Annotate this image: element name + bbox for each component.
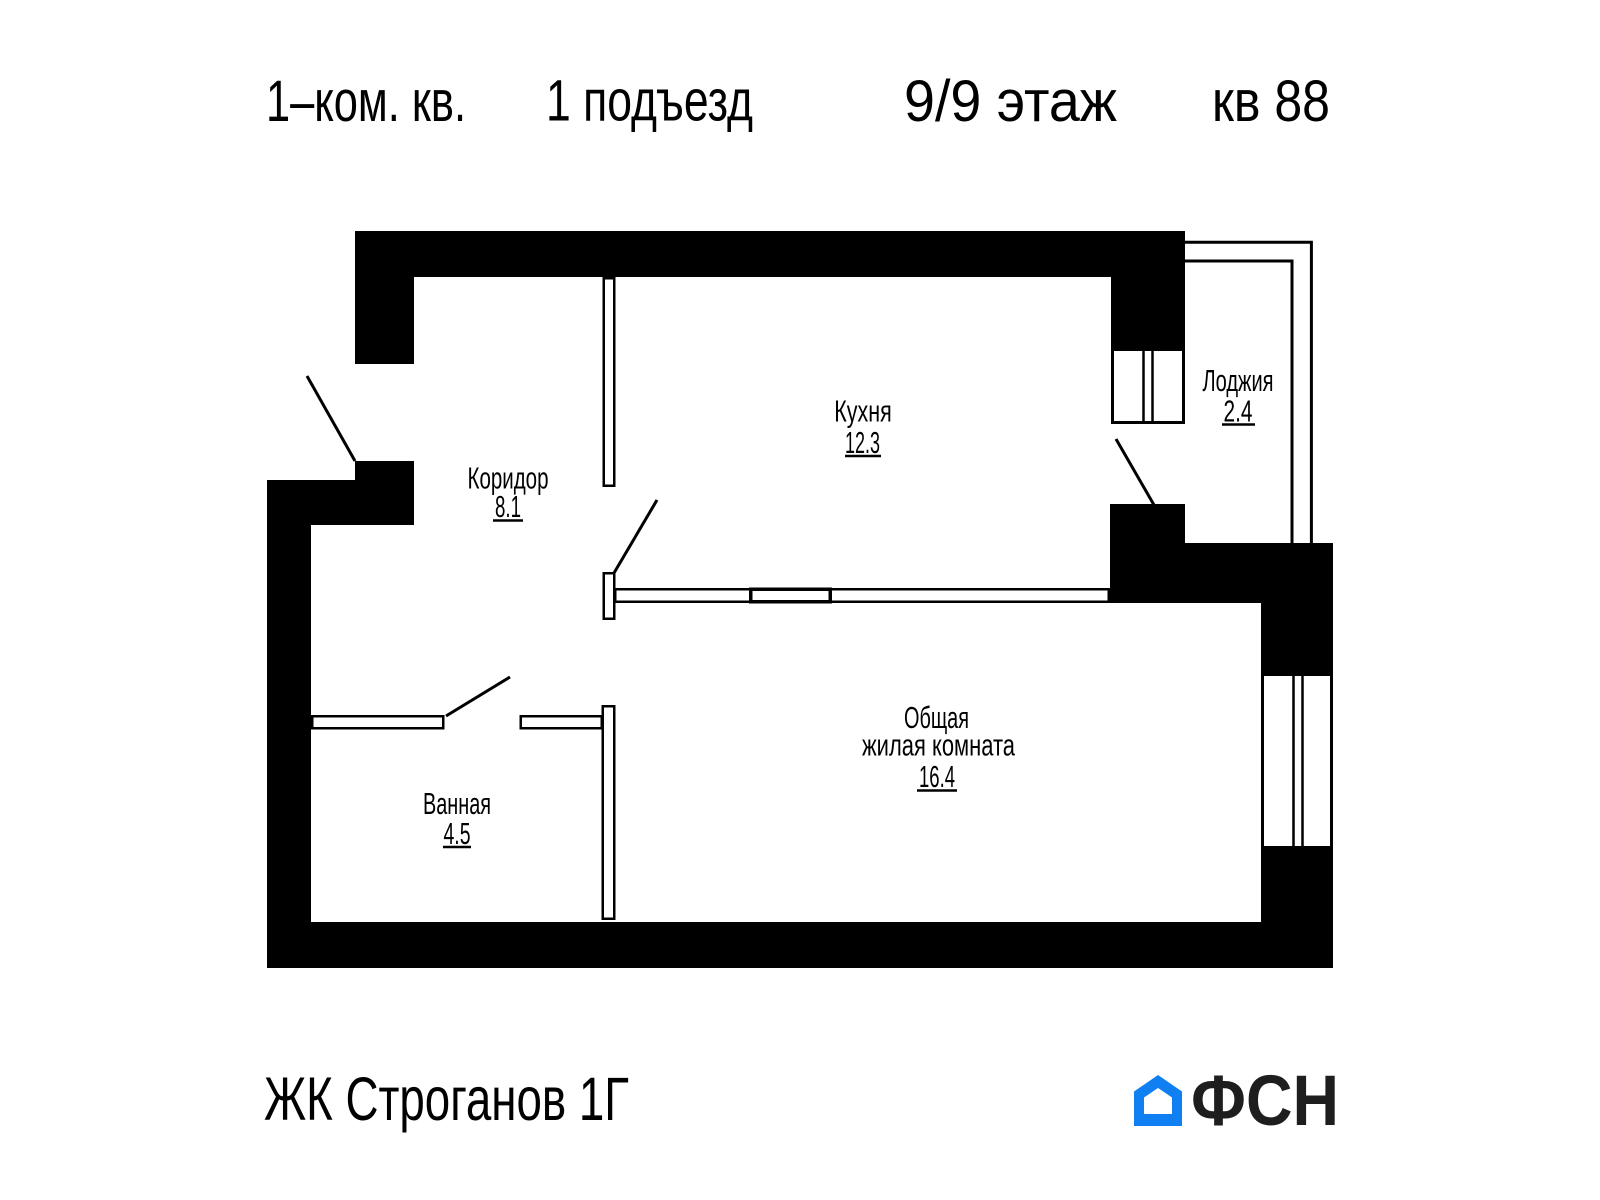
svg-text:ФСН: ФСН [1191, 1062, 1339, 1141]
svg-text:ЖК Строганов 1Г: ЖК Строганов 1Г [264, 1065, 629, 1133]
svg-text:16.4: 16.4 [919, 759, 955, 794]
svg-text:9/9 этаж: 9/9 этаж [904, 69, 1117, 134]
svg-text:Кухня: Кухня [834, 394, 892, 429]
svg-text:8.1: 8.1 [495, 489, 521, 524]
svg-text:кв 88: кв 88 [1212, 69, 1330, 134]
svg-text:1–ком. кв.: 1–ком. кв. [266, 69, 466, 134]
svg-text:1 подъезд: 1 подъезд [546, 69, 753, 134]
svg-text:жилая комната: жилая комната [862, 728, 1016, 763]
